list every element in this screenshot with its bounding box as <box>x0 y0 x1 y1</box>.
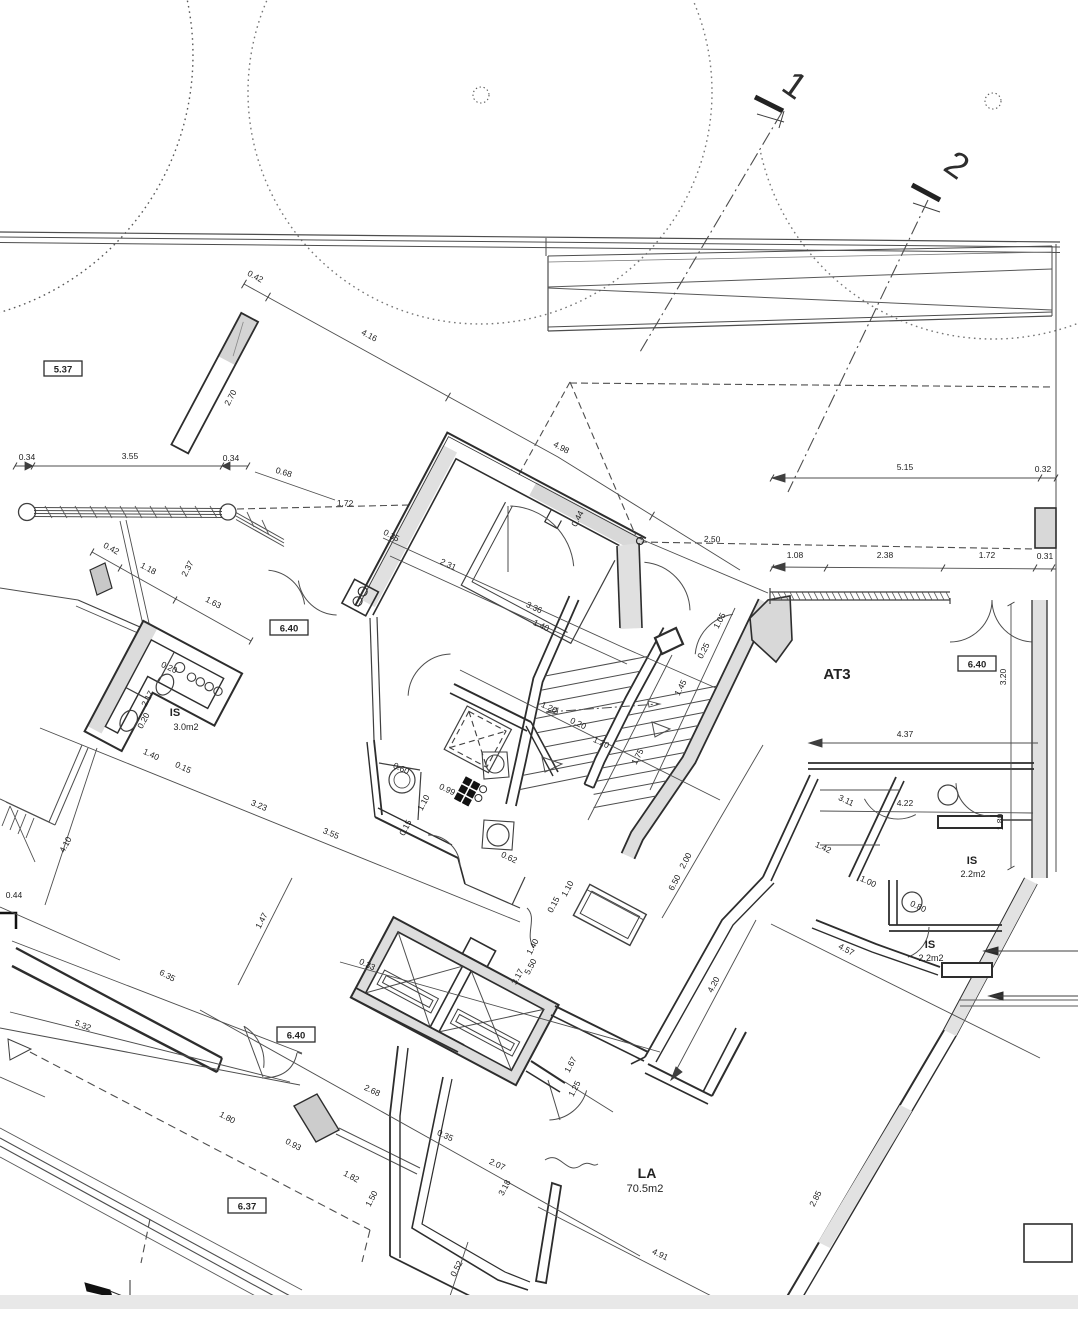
svg-text:2.2m2: 2.2m2 <box>960 869 985 879</box>
svg-text:3.0m2: 3.0m2 <box>173 722 198 732</box>
svg-text:0.34: 0.34 <box>223 453 240 463</box>
svg-text:LA: LA <box>638 1165 657 1181</box>
svg-text:0.34: 0.34 <box>19 452 36 462</box>
svg-text:4.37: 4.37 <box>897 729 914 739</box>
svg-text:2.50: 2.50 <box>704 534 721 545</box>
svg-text:0.31: 0.31 <box>1037 551 1054 561</box>
svg-text:5.15: 5.15 <box>897 462 914 472</box>
svg-text:2.2m2: 2.2m2 <box>918 953 943 963</box>
svg-text:0.32: 0.32 <box>1035 464 1052 474</box>
svg-text:IS: IS <box>967 855 977 867</box>
svg-text:1.80: 1.80 <box>995 813 1005 830</box>
svg-text:6.37: 6.37 <box>238 1202 257 1213</box>
svg-text:6.40: 6.40 <box>968 660 987 671</box>
svg-text:4.22: 4.22 <box>897 798 914 808</box>
svg-text:1.72: 1.72 <box>979 550 996 560</box>
svg-text:3.55: 3.55 <box>122 451 139 461</box>
svg-text:0.44: 0.44 <box>6 890 23 900</box>
svg-text:70.5m2: 70.5m2 <box>627 1183 664 1195</box>
svg-text:6.40: 6.40 <box>287 1031 306 1042</box>
svg-text:2.38: 2.38 <box>877 550 894 560</box>
svg-text:AT3: AT3 <box>823 666 850 683</box>
svg-text:1.08: 1.08 <box>787 550 804 560</box>
svg-text:IS: IS <box>170 707 180 719</box>
svg-text:IS: IS <box>925 939 935 951</box>
svg-text:1.72: 1.72 <box>337 498 354 509</box>
svg-text:5.37: 5.37 <box>54 365 73 376</box>
svg-text:3.20: 3.20 <box>998 668 1008 685</box>
svg-text:6.40: 6.40 <box>280 624 299 635</box>
